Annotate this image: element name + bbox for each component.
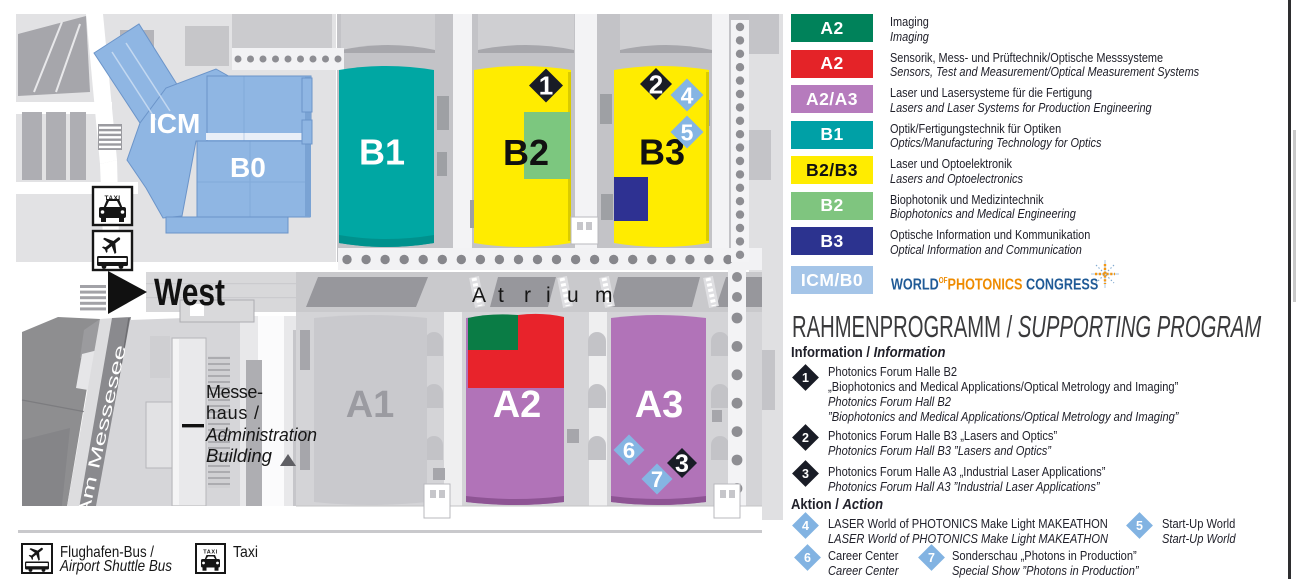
svg-text:u: u [567,284,579,307]
svg-text:5: 5 [681,119,694,145]
svg-text:ICM: ICM [149,108,200,139]
svg-text:A1: A1 [346,384,395,426]
svg-text:Taxi: Taxi [233,544,258,561]
svg-text:Messe-: Messe- [206,382,263,402]
svg-text:4: 4 [681,82,694,108]
svg-text:A3: A3 [635,384,684,426]
svg-text:B2: B2 [503,132,549,173]
svg-text:Building: Building [206,446,272,466]
svg-text:r: r [524,284,531,307]
svg-text:B0: B0 [230,152,266,183]
svg-text:2: 2 [649,69,663,99]
svg-text:A: A [472,284,486,307]
svg-text:Airport Shuttle Bus: Airport Shuttle Bus [59,558,172,575]
svg-text:haus /: haus / [206,403,259,423]
svg-text:t: t [498,284,504,307]
svg-text:3: 3 [675,450,689,478]
svg-text:B1: B1 [359,132,405,173]
svg-text:TAXI: TAXI [203,550,218,556]
svg-text:7: 7 [651,467,663,492]
svg-text:West: West [154,272,225,314]
svg-text:Administration: Administration [205,425,317,445]
svg-text:m: m [595,284,613,307]
svg-text:A2: A2 [493,384,542,426]
svg-text:6: 6 [623,438,635,463]
svg-text:i: i [546,284,551,307]
svg-text:1: 1 [539,70,553,100]
